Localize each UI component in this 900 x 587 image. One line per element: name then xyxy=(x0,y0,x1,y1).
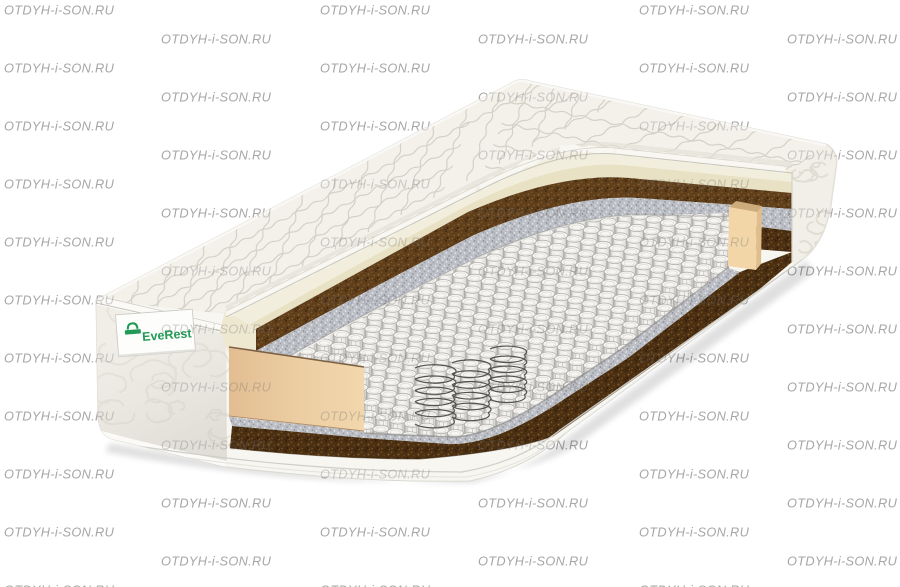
svg-text:OTDYH-i-SON.RU: OTDYH-i-SON.RU xyxy=(639,467,750,482)
svg-text:OTDYH-i-SON.RU: OTDYH-i-SON.RU xyxy=(639,525,750,540)
svg-text:OTDYH-i-SON.RU: OTDYH-i-SON.RU xyxy=(4,3,115,18)
svg-text:OTDYH-i-SON.RU: OTDYH-i-SON.RU xyxy=(639,583,750,587)
svg-text:OTDYH-i-SON.RU: OTDYH-i-SON.RU xyxy=(320,235,431,250)
svg-text:OTDYH-i-SON.RU: OTDYH-i-SON.RU xyxy=(478,32,589,47)
svg-text:OTDYH-i-SON.RU: OTDYH-i-SON.RU xyxy=(161,554,272,569)
svg-text:OTDYH-i-SON.RU: OTDYH-i-SON.RU xyxy=(639,235,750,250)
svg-text:OTDYH-i-SON.RU: OTDYH-i-SON.RU xyxy=(787,380,898,395)
svg-text:OTDYH-i-SON.RU: OTDYH-i-SON.RU xyxy=(4,525,115,540)
svg-text:OTDYH-i-SON.RU: OTDYH-i-SON.RU xyxy=(320,351,431,366)
svg-text:OTDYH-i-SON.RU: OTDYH-i-SON.RU xyxy=(161,90,272,105)
svg-text:OTDYH-i-SON.RU: OTDYH-i-SON.RU xyxy=(787,32,898,47)
svg-text:OTDYH-i-SON.RU: OTDYH-i-SON.RU xyxy=(639,409,750,424)
svg-text:OTDYH-i-SON.RU: OTDYH-i-SON.RU xyxy=(478,264,589,279)
svg-text:OTDYH-i-SON.RU: OTDYH-i-SON.RU xyxy=(4,467,115,482)
svg-text:OTDYH-i-SON.RU: OTDYH-i-SON.RU xyxy=(639,177,750,192)
svg-text:OTDYH-i-SON.RU: OTDYH-i-SON.RU xyxy=(4,583,115,587)
svg-text:OTDYH-i-SON.RU: OTDYH-i-SON.RU xyxy=(787,496,898,511)
svg-text:OTDYH-i-SON.RU: OTDYH-i-SON.RU xyxy=(320,293,431,308)
svg-text:OTDYH-i-SON.RU: OTDYH-i-SON.RU xyxy=(478,148,589,163)
svg-text:OTDYH-i-SON.RU: OTDYH-i-SON.RU xyxy=(478,206,589,221)
svg-text:OTDYH-i-SON.RU: OTDYH-i-SON.RU xyxy=(4,177,115,192)
svg-text:OTDYH-i-SON.RU: OTDYH-i-SON.RU xyxy=(478,496,589,511)
svg-text:OTDYH-i-SON.RU: OTDYH-i-SON.RU xyxy=(320,177,431,192)
svg-text:OTDYH-i-SON.RU: OTDYH-i-SON.RU xyxy=(787,90,898,105)
svg-text:OTDYH-i-SON.RU: OTDYH-i-SON.RU xyxy=(161,322,272,337)
svg-text:OTDYH-i-SON.RU: OTDYH-i-SON.RU xyxy=(320,409,431,424)
svg-text:OTDYH-i-SON.RU: OTDYH-i-SON.RU xyxy=(478,380,589,395)
svg-text:OTDYH-i-SON.RU: OTDYH-i-SON.RU xyxy=(4,119,115,134)
svg-text:OTDYH-i-SON.RU: OTDYH-i-SON.RU xyxy=(478,554,589,569)
svg-text:OTDYH-i-SON.RU: OTDYH-i-SON.RU xyxy=(478,322,589,337)
svg-text:OTDYH-i-SON.RU: OTDYH-i-SON.RU xyxy=(320,583,431,587)
svg-text:OTDYH-i-SON.RU: OTDYH-i-SON.RU xyxy=(161,380,272,395)
svg-text:OTDYH-i-SON.RU: OTDYH-i-SON.RU xyxy=(320,61,431,76)
svg-text:OTDYH-i-SON.RU: OTDYH-i-SON.RU xyxy=(478,90,589,105)
svg-text:OTDYH-i-SON.RU: OTDYH-i-SON.RU xyxy=(320,3,431,18)
svg-text:OTDYH-i-SON.RU: OTDYH-i-SON.RU xyxy=(161,32,272,47)
svg-text:OTDYH-i-SON.RU: OTDYH-i-SON.RU xyxy=(787,438,898,453)
svg-text:OTDYH-i-SON.RU: OTDYH-i-SON.RU xyxy=(4,235,115,250)
svg-text:OTDYH-i-SON.RU: OTDYH-i-SON.RU xyxy=(320,119,431,134)
svg-text:OTDYH-i-SON.RU: OTDYH-i-SON.RU xyxy=(787,322,898,337)
svg-text:OTDYH-i-SON.RU: OTDYH-i-SON.RU xyxy=(4,61,115,76)
svg-text:OTDYH-i-SON.RU: OTDYH-i-SON.RU xyxy=(639,3,750,18)
svg-text:OTDYH-i-SON.RU: OTDYH-i-SON.RU xyxy=(161,438,272,453)
svg-text:OTDYH-i-SON.RU: OTDYH-i-SON.RU xyxy=(161,496,272,511)
svg-text:OTDYH-i-SON.RU: OTDYH-i-SON.RU xyxy=(161,264,272,279)
svg-text:OTDYH-i-SON.RU: OTDYH-i-SON.RU xyxy=(787,554,898,569)
svg-text:OTDYH-i-SON.RU: OTDYH-i-SON.RU xyxy=(320,525,431,540)
svg-text:OTDYH-i-SON.RU: OTDYH-i-SON.RU xyxy=(161,148,272,163)
svg-text:OTDYH-i-SON.RU: OTDYH-i-SON.RU xyxy=(639,61,750,76)
svg-text:OTDYH-i-SON.RU: OTDYH-i-SON.RU xyxy=(639,293,750,308)
